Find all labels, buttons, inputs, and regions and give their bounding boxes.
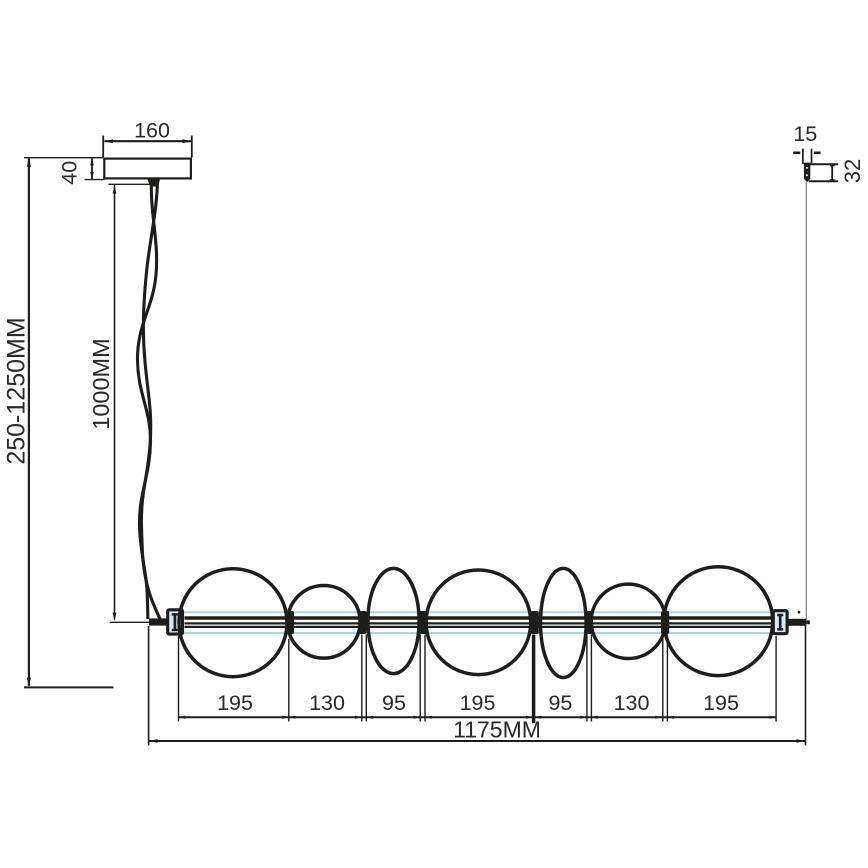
svg-text:40: 40 xyxy=(58,161,82,185)
svg-text:130: 130 xyxy=(614,691,650,715)
svg-text:195: 195 xyxy=(217,691,253,715)
svg-text:95: 95 xyxy=(548,691,572,715)
svg-text:250-1250MM: 250-1250MM xyxy=(3,317,31,464)
svg-text:130: 130 xyxy=(309,691,345,715)
svg-text:15: 15 xyxy=(793,122,817,146)
svg-text:32: 32 xyxy=(840,159,865,183)
svg-text:95: 95 xyxy=(382,691,406,715)
svg-text:1175MM: 1175MM xyxy=(453,717,541,743)
svg-text:1000MM: 1000MM xyxy=(88,338,114,429)
svg-text:160: 160 xyxy=(134,118,170,142)
svg-text:195: 195 xyxy=(460,691,496,715)
svg-text:195: 195 xyxy=(703,691,739,715)
